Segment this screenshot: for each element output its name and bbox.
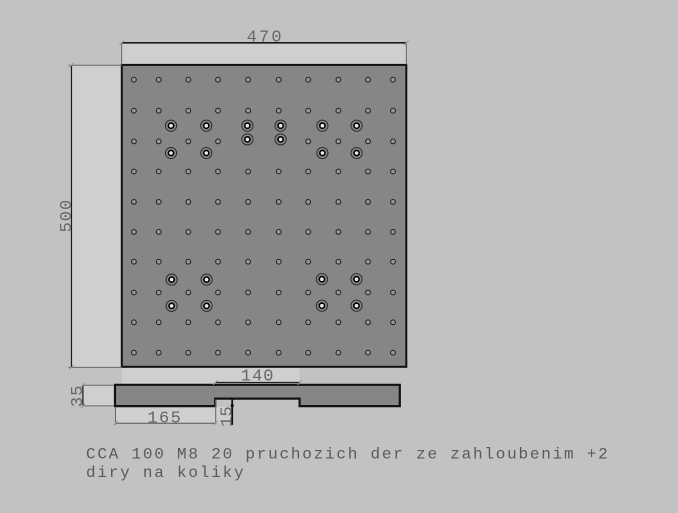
svg-text:500: 500 [58, 199, 77, 233]
svg-text:470: 470 [247, 28, 284, 47]
svg-text:165: 165 [147, 409, 182, 428]
svg-text:15: 15 [219, 406, 238, 427]
svg-text:35: 35 [69, 384, 88, 407]
svg-text:CCA 100 M8 20 pruchozich der z: CCA 100 M8 20 pruchozich der ze zahloube… [86, 446, 610, 464]
svg-text:140: 140 [241, 367, 275, 386]
svg-text:diry na koliky: diry na koliky [86, 464, 245, 482]
